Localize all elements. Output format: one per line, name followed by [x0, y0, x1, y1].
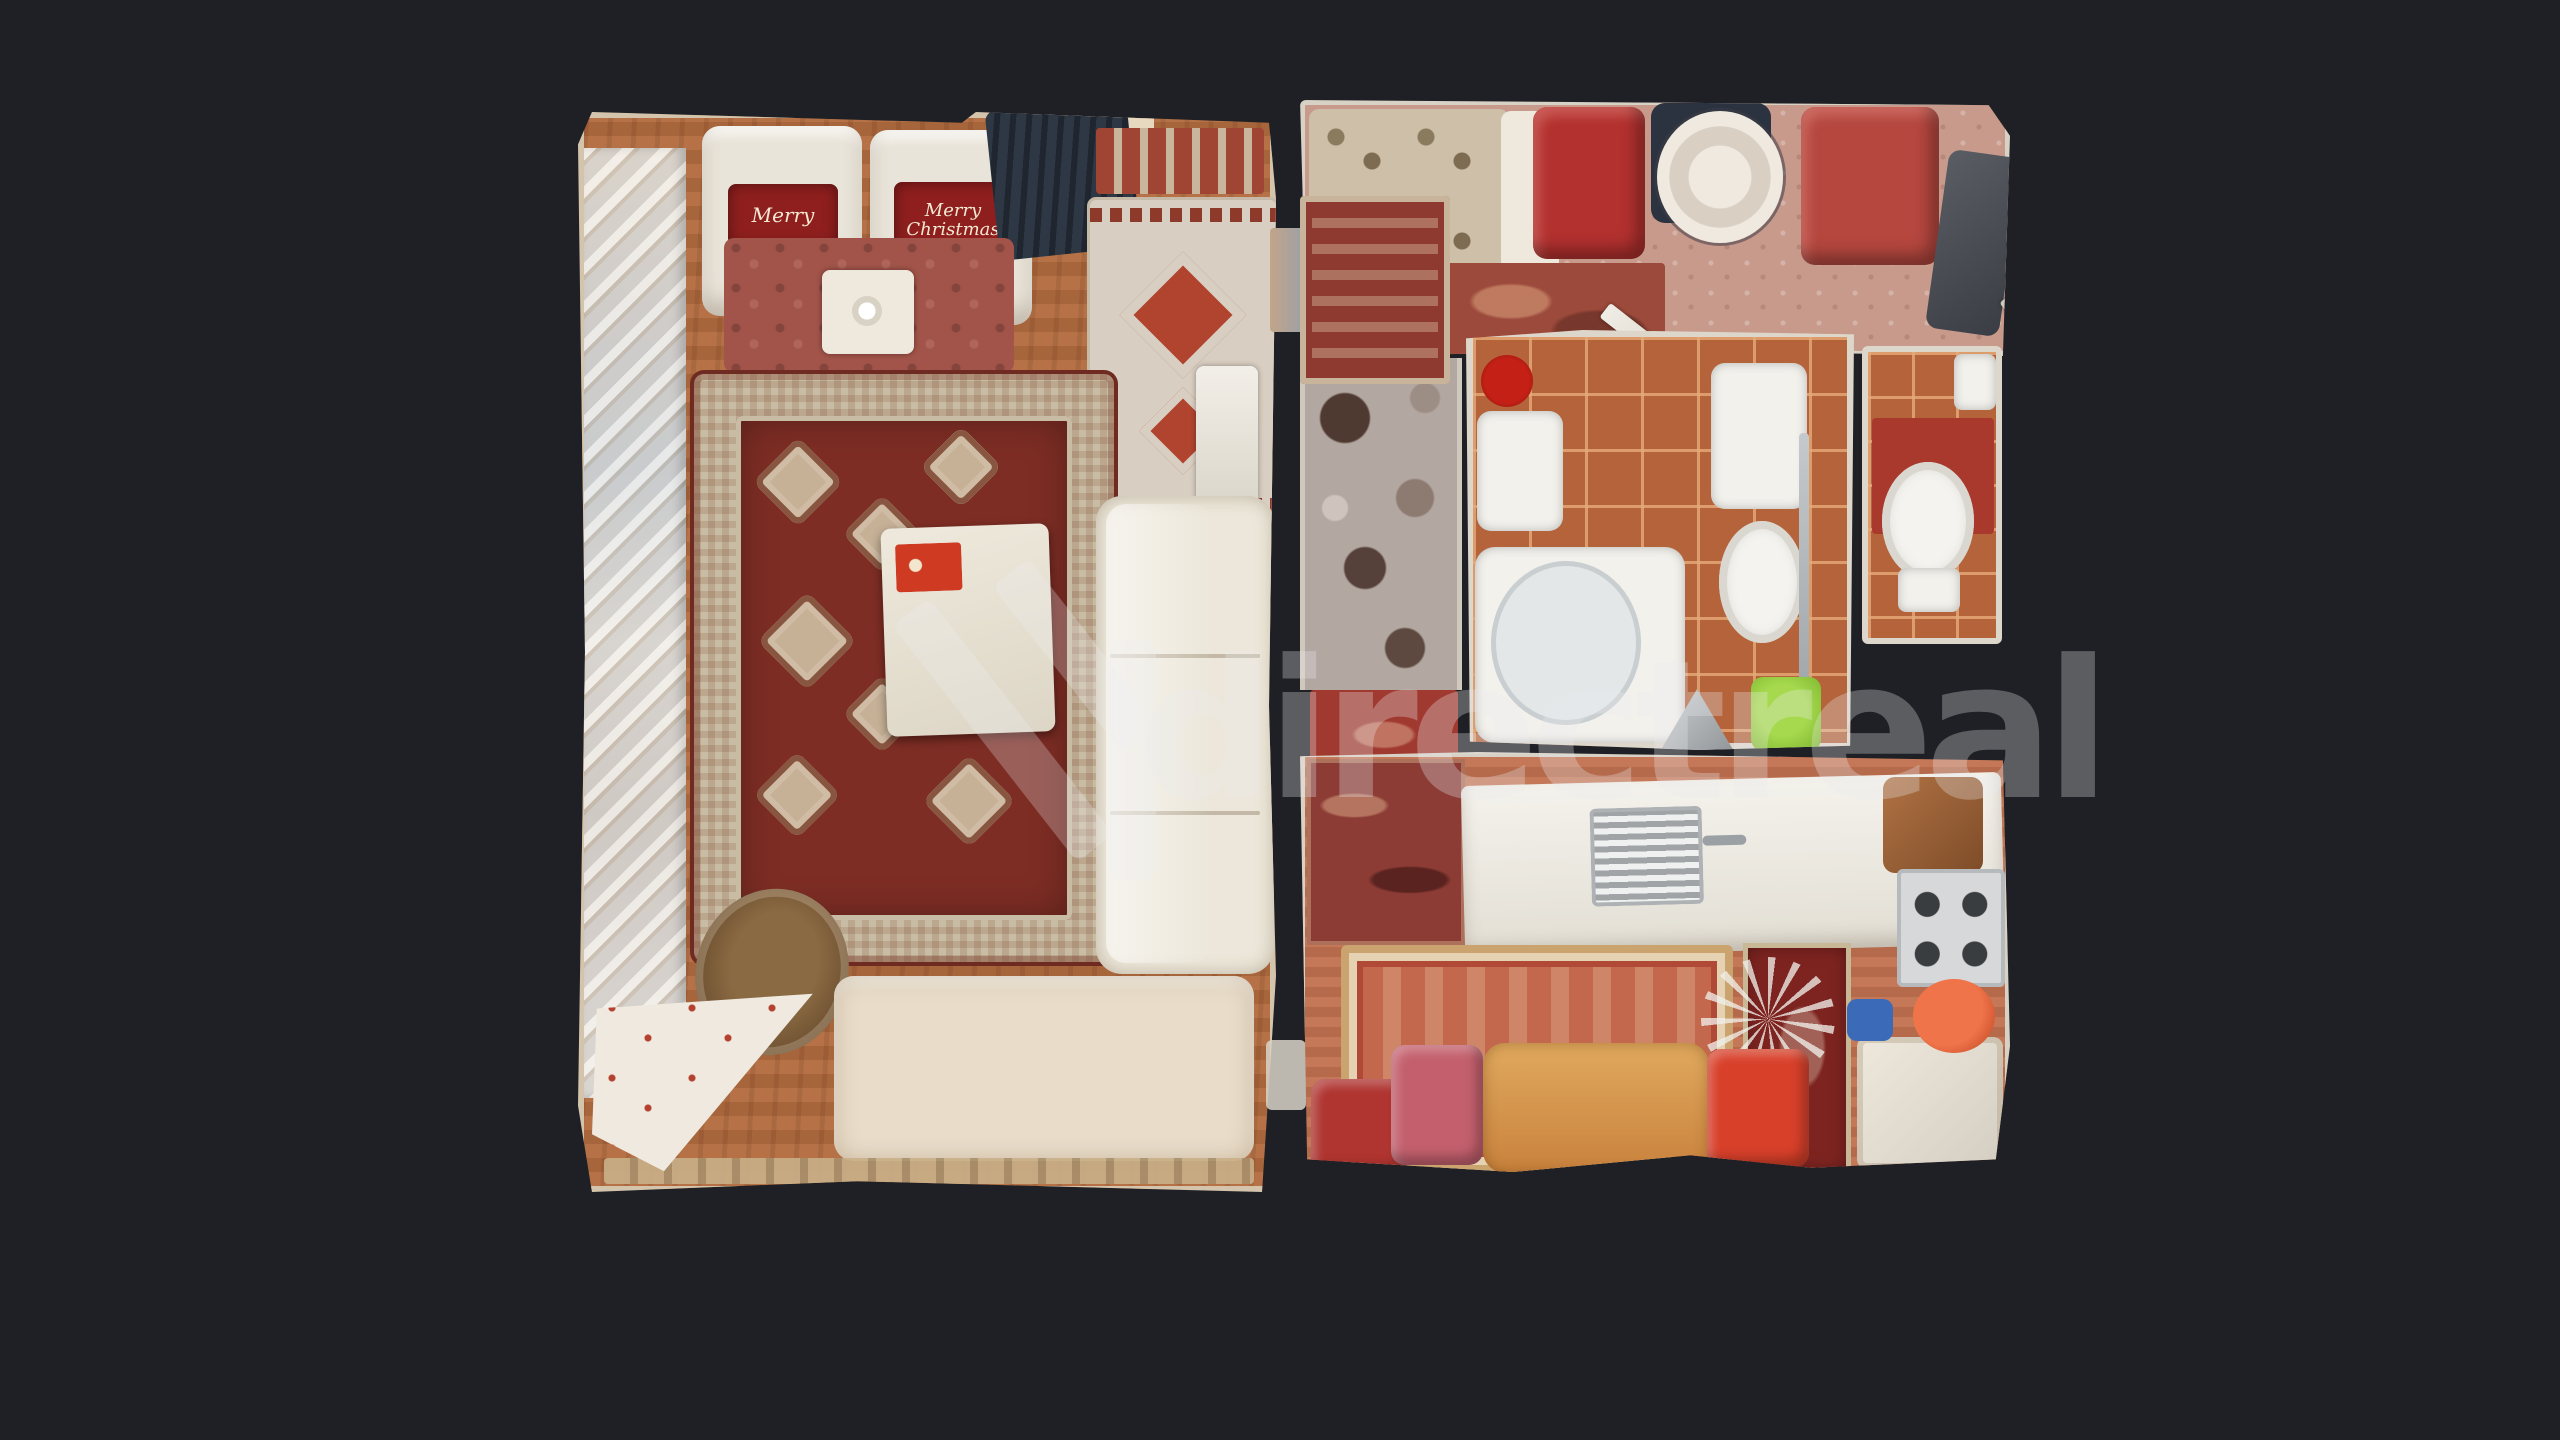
sofa [1096, 496, 1274, 974]
gas-stove [1897, 869, 2005, 987]
bathroom-vase [1481, 355, 1533, 407]
bathtub [1475, 547, 1685, 743]
wall-tapestry [1307, 759, 1465, 945]
red-armchair [1801, 107, 1939, 265]
red-stool [1533, 107, 1645, 259]
floorplan-viewport[interactable]: Merry Merry Christmas [0, 0, 2560, 1440]
toilet-cistern [1711, 363, 1807, 509]
pillow-text-left: Merry [752, 205, 815, 226]
dining-table [1483, 1043, 1709, 1173]
corridor-runner-rug [1300, 196, 1450, 384]
toilet-bowl [1719, 521, 1805, 643]
bed [834, 976, 1254, 1161]
faucet [1702, 835, 1746, 846]
wc[interactable] [1862, 346, 2002, 644]
wardrobe-mirror-strip [584, 148, 686, 1098]
chair-pink [1391, 1045, 1483, 1165]
christmas-pillow-left: Merry [728, 184, 838, 246]
living-room[interactable]: Merry Merry Christmas [578, 112, 1276, 1192]
bathroom[interactable] [1466, 330, 1854, 750]
bed-frame-edge [604, 1158, 1254, 1184]
green-bucket [1751, 677, 1821, 751]
blue-jug [1847, 999, 1893, 1041]
gift-box [880, 523, 1055, 737]
kitchen-sink [1589, 806, 1704, 907]
wc-toilet-bowl [1882, 462, 1974, 580]
chair-orange [1707, 1049, 1809, 1167]
orange-pot [1913, 979, 1995, 1053]
wc-corner-basin [1954, 354, 1996, 410]
wc-toilet-base [1898, 568, 1960, 612]
white-cabinet [1857, 1037, 2003, 1169]
teacup [852, 296, 882, 326]
open-door-right [1999, 192, 2152, 317]
wooden-chair [1883, 777, 1983, 873]
corridor[interactable] [1300, 358, 1462, 690]
round-table [1657, 111, 1783, 243]
washbasin [1477, 411, 1563, 531]
lower-connector-fragment [1266, 1040, 1306, 1110]
coat-rack [1925, 149, 2023, 338]
gift-box-label [895, 542, 963, 592]
kitchen[interactable] [1300, 752, 2010, 1172]
stacked-rug [1096, 128, 1264, 194]
